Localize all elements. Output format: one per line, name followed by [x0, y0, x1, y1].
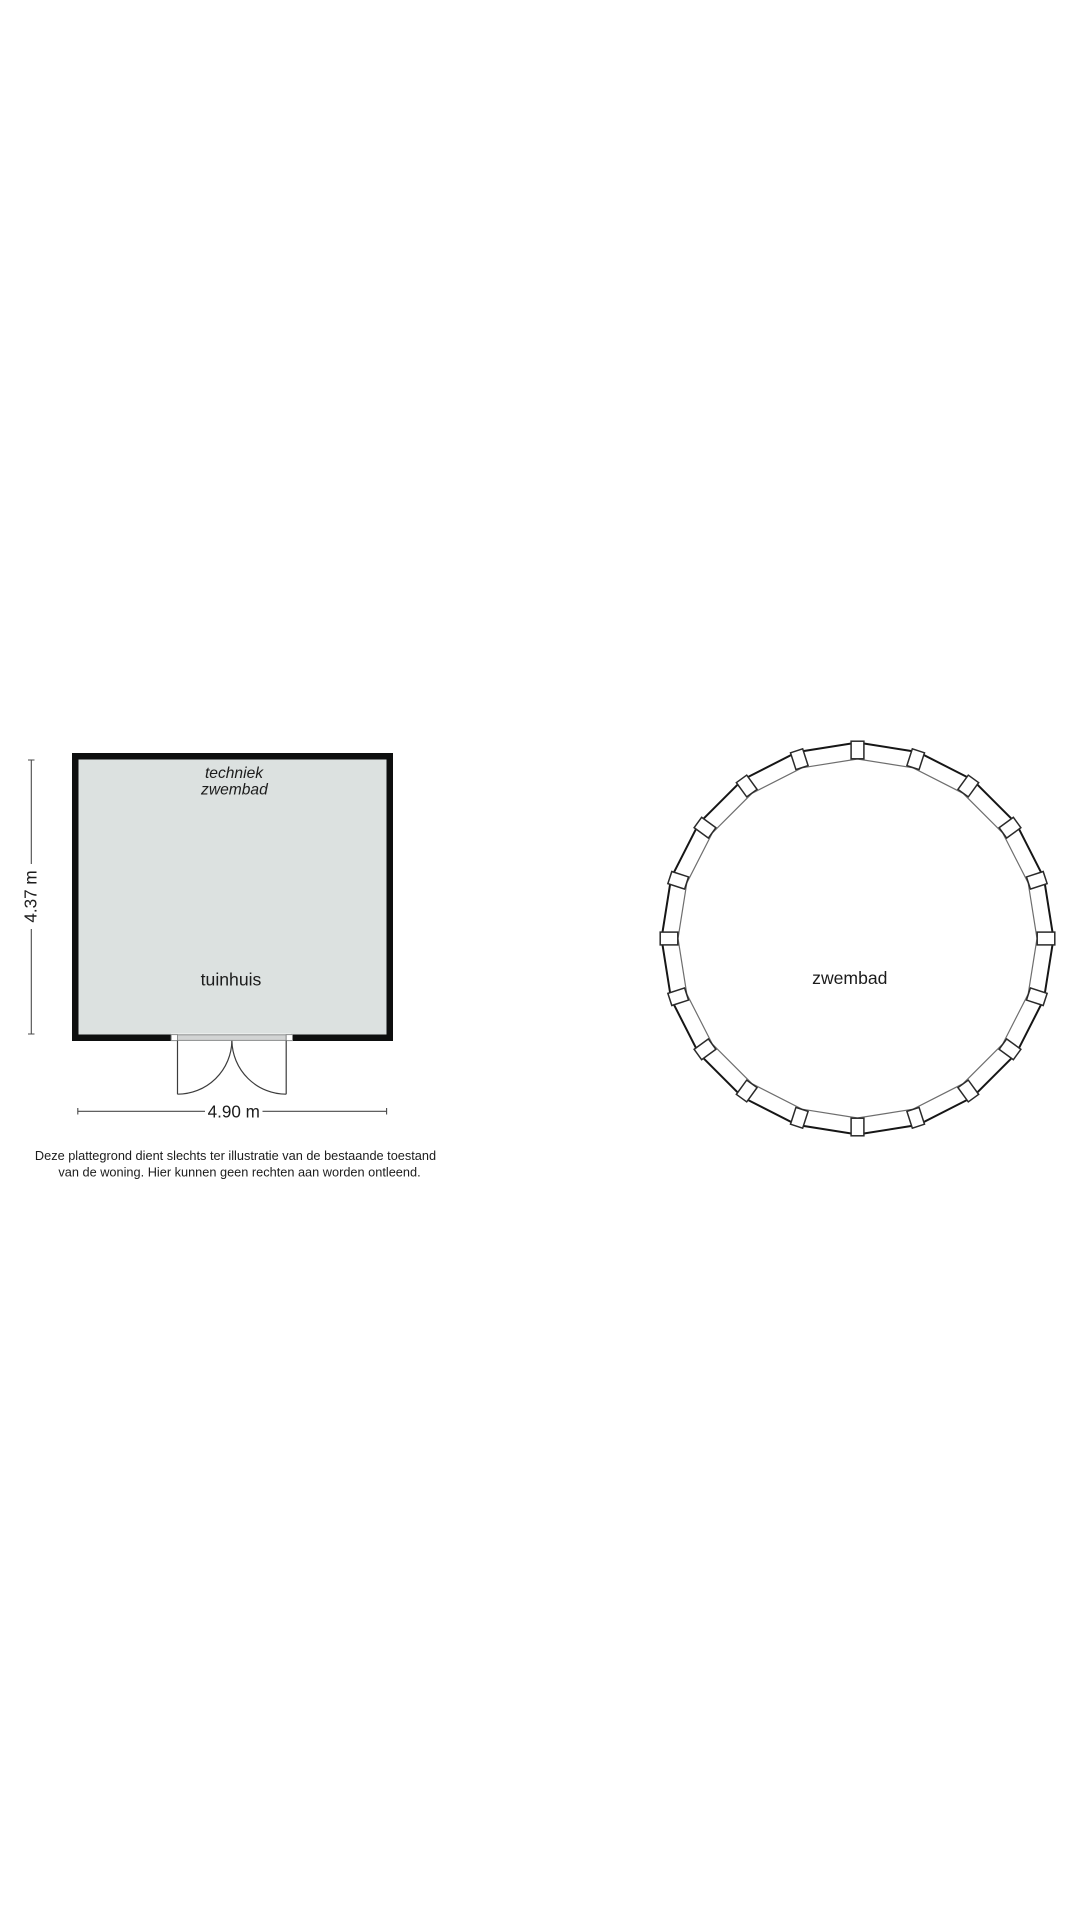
svg-text:van de woning. Hier kunnen gee: van de woning. Hier kunnen geen rechten … — [58, 1164, 420, 1179]
svg-text:zwembad: zwembad — [812, 968, 887, 988]
svg-text:Deze plattegrond dient slechts: Deze plattegrond dient slechts ter illus… — [35, 1148, 436, 1163]
svg-text:4.90 m: 4.90 m — [208, 1103, 260, 1122]
svg-text:4.37 m: 4.37 m — [21, 870, 40, 922]
svg-text:tuinhuis: tuinhuis — [201, 970, 262, 990]
svg-text:zwembad: zwembad — [200, 782, 269, 799]
svg-text:techniek: techniek — [205, 765, 264, 782]
